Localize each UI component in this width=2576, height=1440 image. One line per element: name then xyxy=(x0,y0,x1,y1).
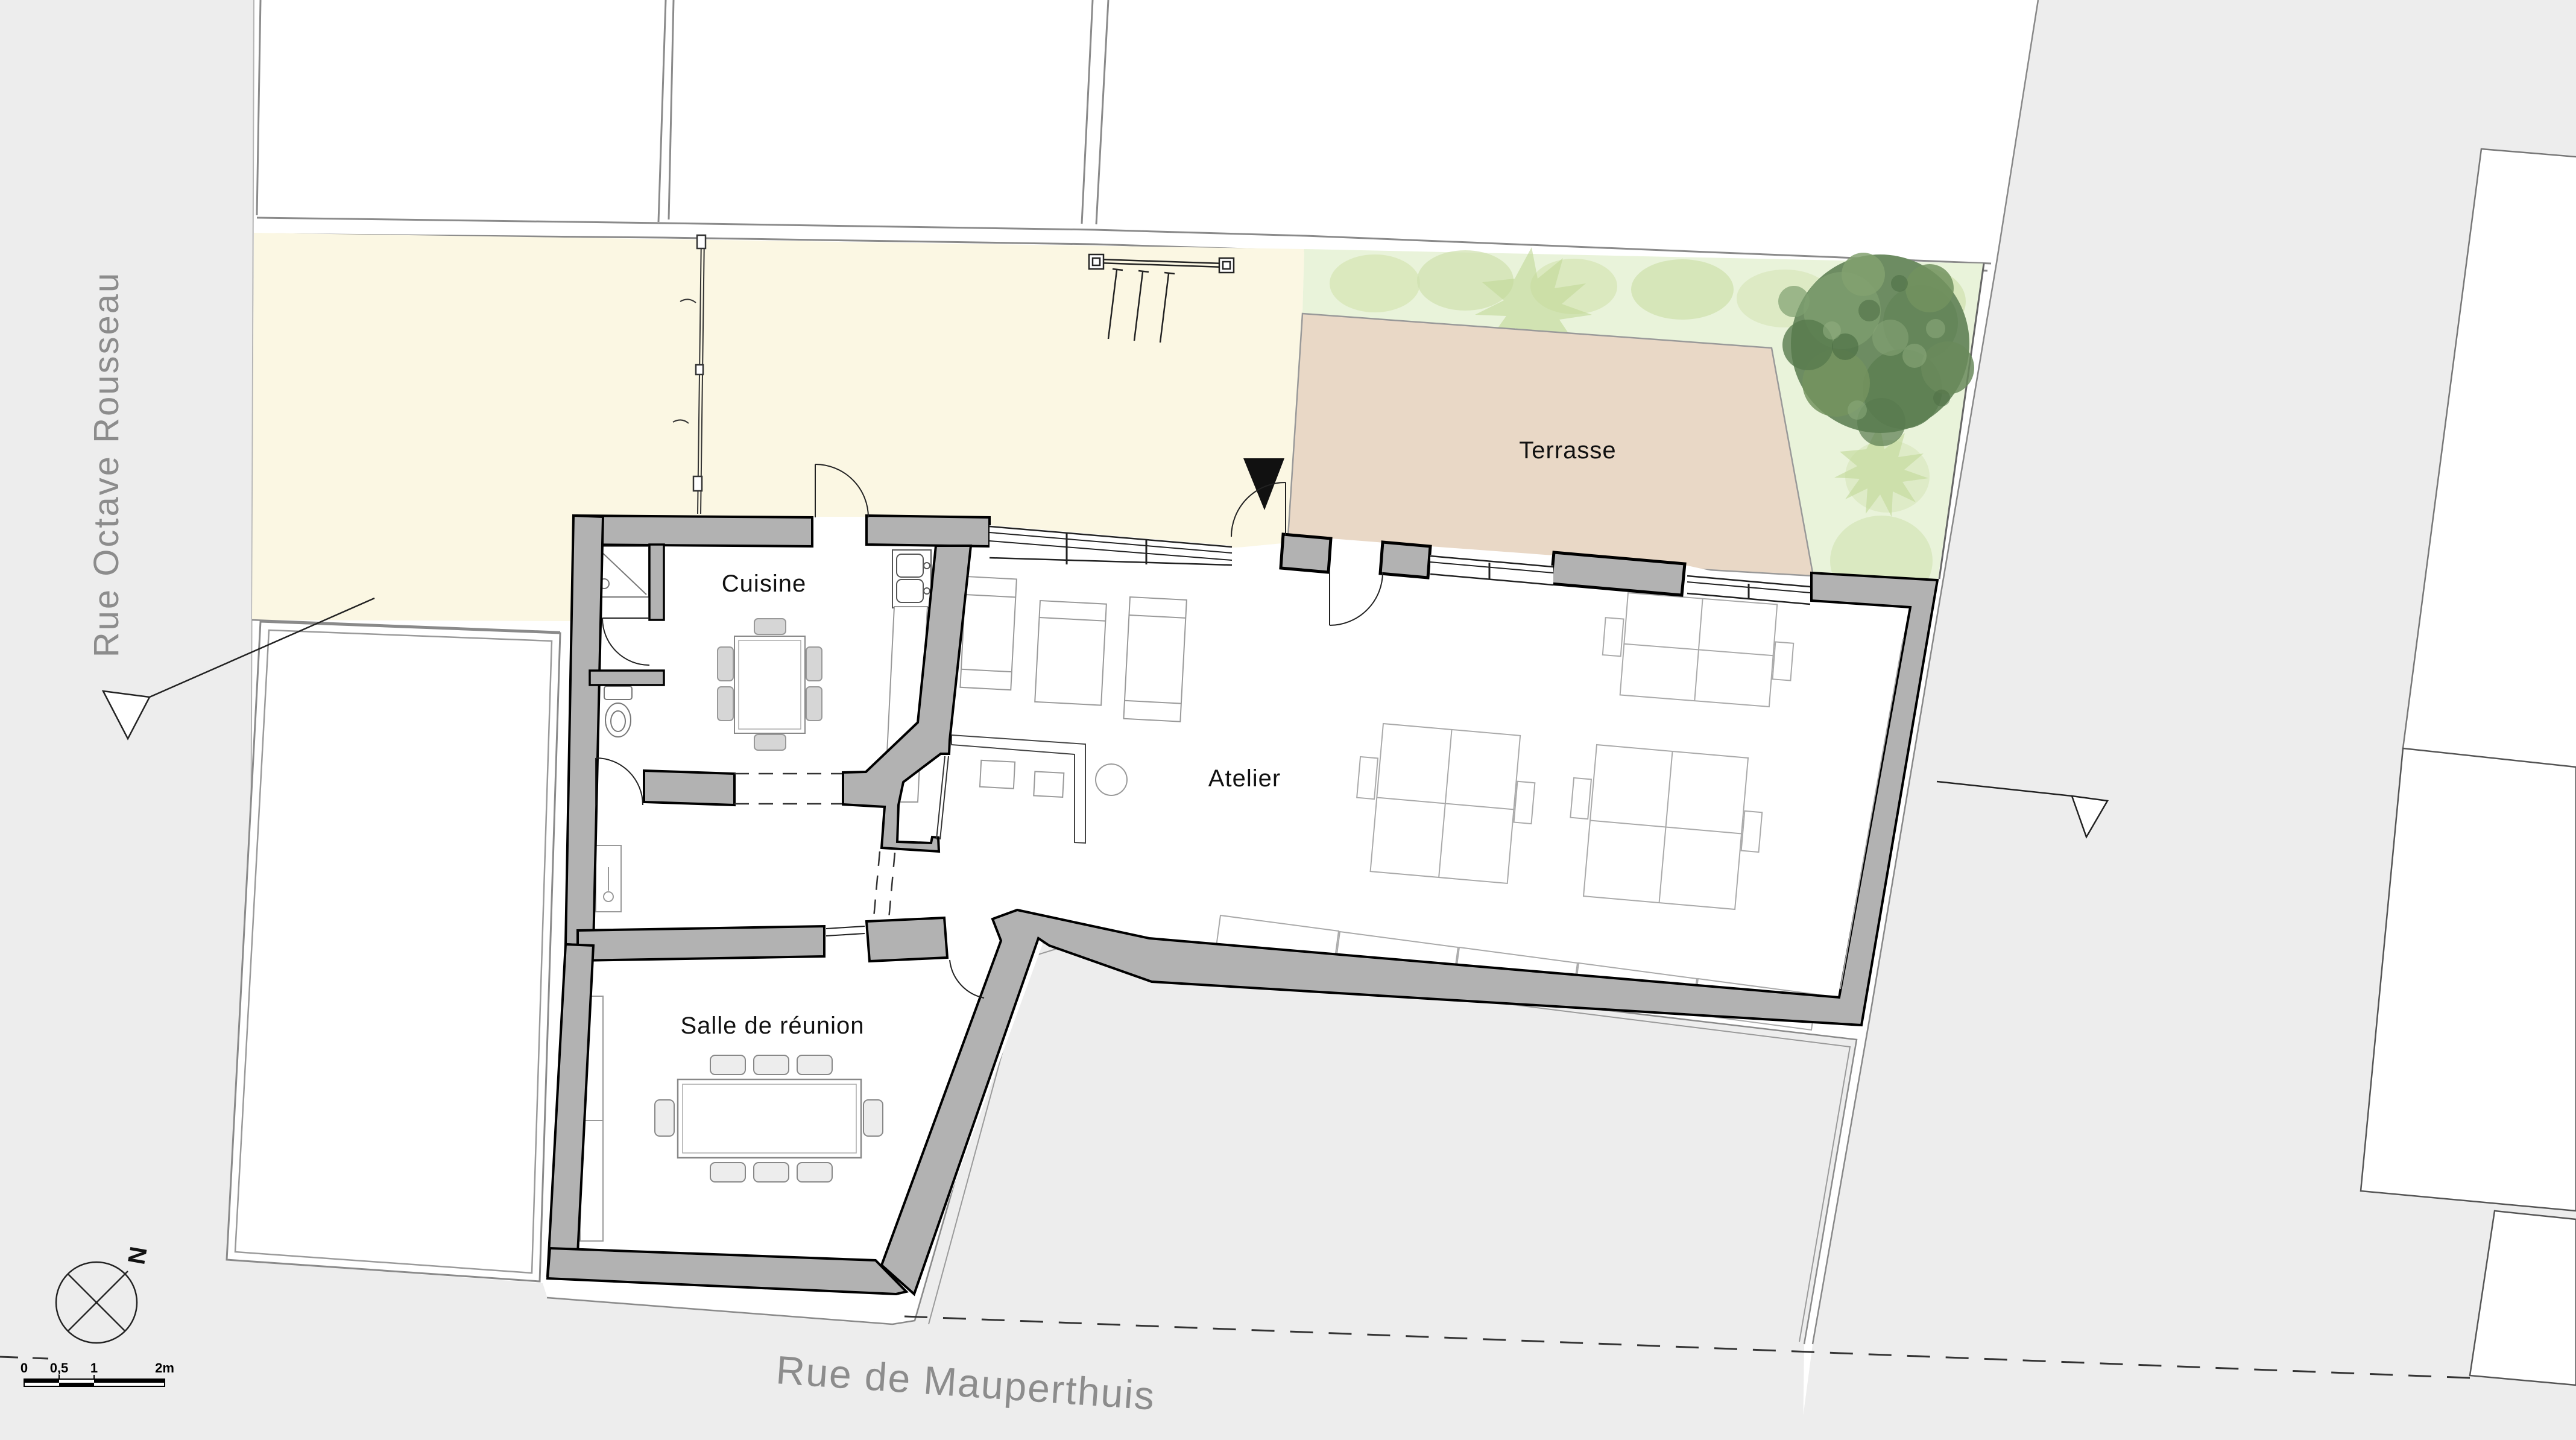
svg-text:Salle de réunion: Salle de réunion xyxy=(680,1012,864,1039)
svg-text:Terrasse: Terrasse xyxy=(1519,437,1616,464)
svg-text:Rue Octave Rousseau: Rue Octave Rousseau xyxy=(87,271,126,658)
svg-text:Atelier: Atelier xyxy=(1208,765,1281,792)
svg-text:0,5: 0,5 xyxy=(50,1360,69,1375)
svg-text:1: 1 xyxy=(90,1360,98,1375)
svg-text:2m: 2m xyxy=(155,1360,174,1375)
svg-text:0: 0 xyxy=(21,1360,28,1375)
svg-text:Cuisine: Cuisine xyxy=(722,570,806,597)
